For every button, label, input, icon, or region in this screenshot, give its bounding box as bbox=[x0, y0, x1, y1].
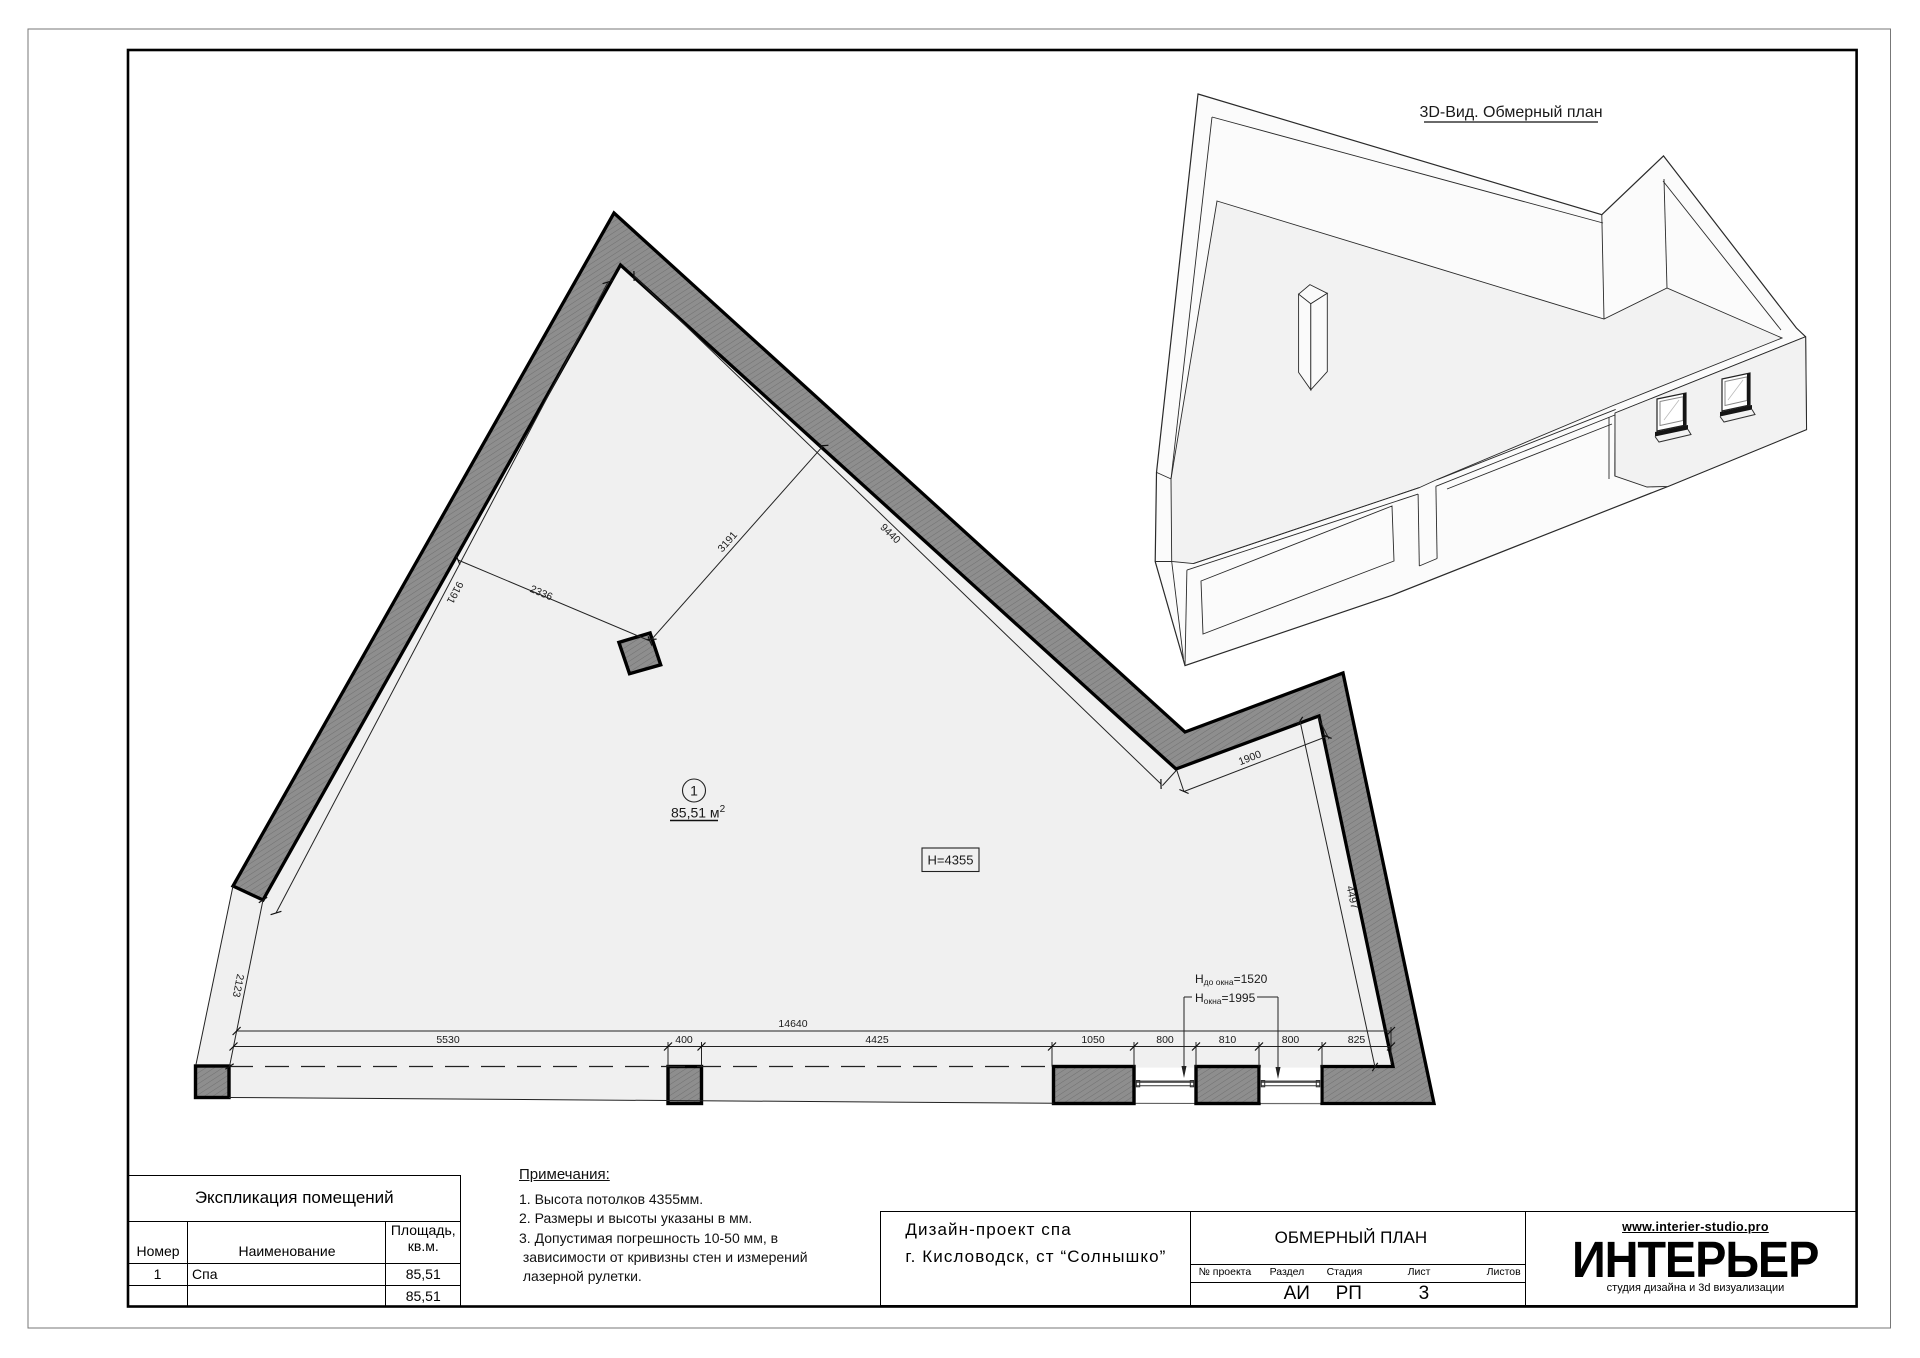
svg-text:4425: 4425 bbox=[865, 1034, 889, 1046]
svg-text:85,51 м2: 85,51 м2 bbox=[671, 804, 726, 821]
svg-text:825: 825 bbox=[1348, 1034, 1366, 1046]
svg-text:14640: 14640 bbox=[778, 1018, 807, 1030]
svg-text:H=4355: H=4355 bbox=[928, 853, 974, 868]
svg-text:400: 400 bbox=[675, 1034, 693, 1046]
svg-text:800: 800 bbox=[1282, 1034, 1300, 1046]
svg-text:810: 810 bbox=[1219, 1034, 1237, 1046]
svg-text:1050: 1050 bbox=[1081, 1034, 1105, 1046]
svg-text:3D-Вид. Обмерный план: 3D-Вид. Обмерный план bbox=[1419, 104, 1602, 121]
svg-text:1: 1 bbox=[690, 783, 698, 799]
svg-text:5530: 5530 bbox=[436, 1034, 460, 1046]
svg-text:800: 800 bbox=[1156, 1034, 1174, 1046]
